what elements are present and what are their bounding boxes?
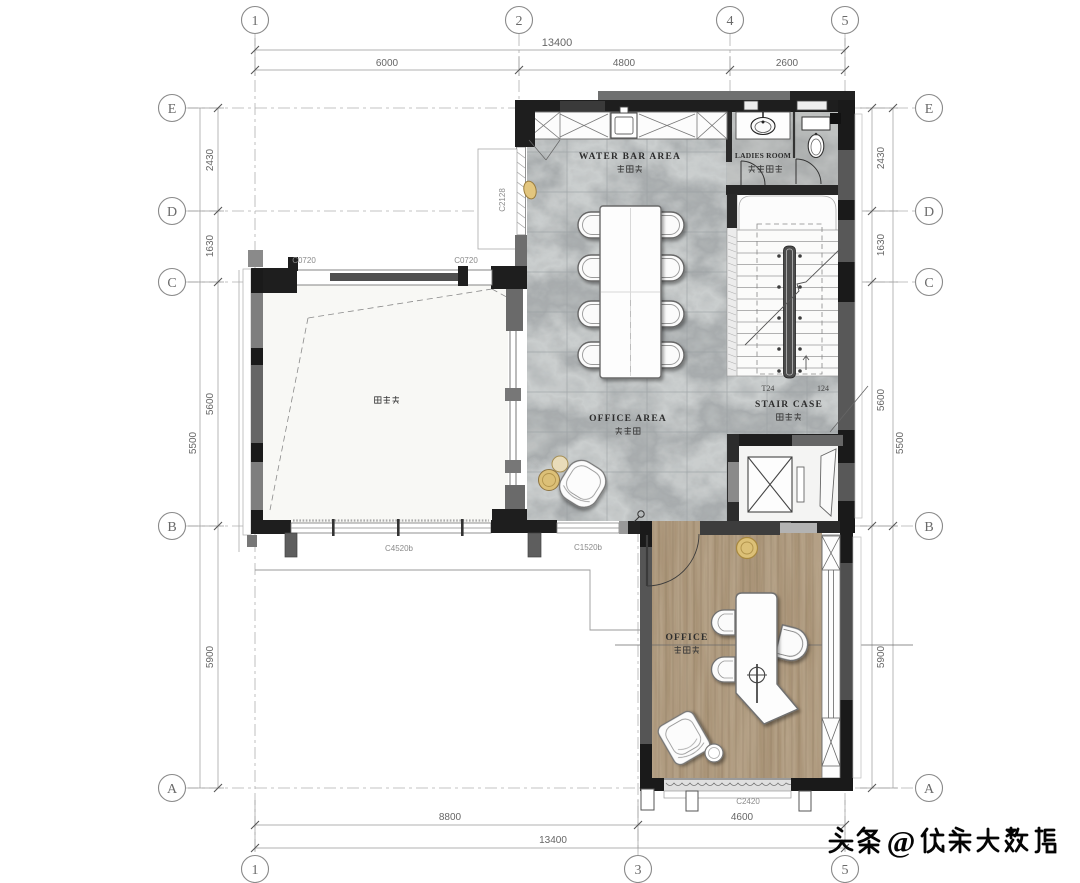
svg-text:1630: 1630 — [876, 233, 887, 256]
svg-text:STAIR CASE: STAIR CASE — [755, 400, 823, 410]
svg-text:2430: 2430 — [876, 146, 887, 169]
svg-text:6000: 6000 — [376, 58, 399, 69]
svg-text:WATER BAR AREA: WATER BAR AREA — [579, 152, 681, 162]
svg-text:A: A — [924, 782, 935, 797]
svg-text:C4520b: C4520b — [385, 544, 414, 553]
svg-text:4: 4 — [727, 14, 734, 29]
svg-text:2430: 2430 — [205, 148, 216, 171]
svg-text:C: C — [924, 276, 933, 291]
svg-text:E: E — [925, 102, 934, 117]
svg-text:D: D — [167, 205, 177, 220]
svg-text:8800: 8800 — [439, 812, 462, 823]
svg-text:3: 3 — [635, 863, 642, 878]
svg-text:OFFICE: OFFICE — [665, 633, 708, 643]
svg-text:@: @ — [887, 824, 916, 859]
svg-text:C0720: C0720 — [454, 256, 478, 265]
svg-text:LADIES ROOM: LADIES ROOM — [735, 151, 791, 160]
svg-text:C2128: C2128 — [498, 188, 507, 212]
svg-text:2600: 2600 — [776, 58, 799, 69]
svg-text:1: 1 — [252, 14, 259, 29]
svg-text:C: C — [167, 276, 176, 291]
svg-text:5600: 5600 — [876, 388, 887, 411]
svg-text:OFFICE AREA: OFFICE AREA — [589, 414, 667, 424]
svg-text:E: E — [168, 102, 177, 117]
svg-text:5600: 5600 — [205, 392, 216, 415]
svg-text:13400: 13400 — [542, 37, 573, 49]
svg-text:5: 5 — [842, 863, 849, 878]
svg-text:1630: 1630 — [205, 234, 216, 257]
svg-text:4600: 4600 — [731, 812, 754, 823]
svg-text:C1520b: C1520b — [574, 543, 603, 552]
svg-text:13400: 13400 — [539, 835, 567, 846]
svg-text:B: B — [167, 520, 176, 535]
svg-text:B: B — [924, 520, 933, 535]
svg-text:124: 124 — [817, 384, 829, 393]
svg-text:D: D — [924, 205, 934, 220]
svg-text:5900: 5900 — [876, 645, 887, 668]
svg-text:T24: T24 — [762, 384, 775, 393]
svg-text:5500: 5500 — [895, 431, 906, 454]
svg-text:1: 1 — [252, 863, 259, 878]
svg-text:5900: 5900 — [205, 645, 216, 668]
svg-text:2: 2 — [516, 14, 523, 29]
svg-text:C0720: C0720 — [292, 256, 316, 265]
svg-text:5500: 5500 — [188, 431, 199, 454]
svg-text:4800: 4800 — [613, 58, 636, 69]
svg-text:A: A — [167, 782, 178, 797]
svg-text:5: 5 — [842, 14, 849, 29]
